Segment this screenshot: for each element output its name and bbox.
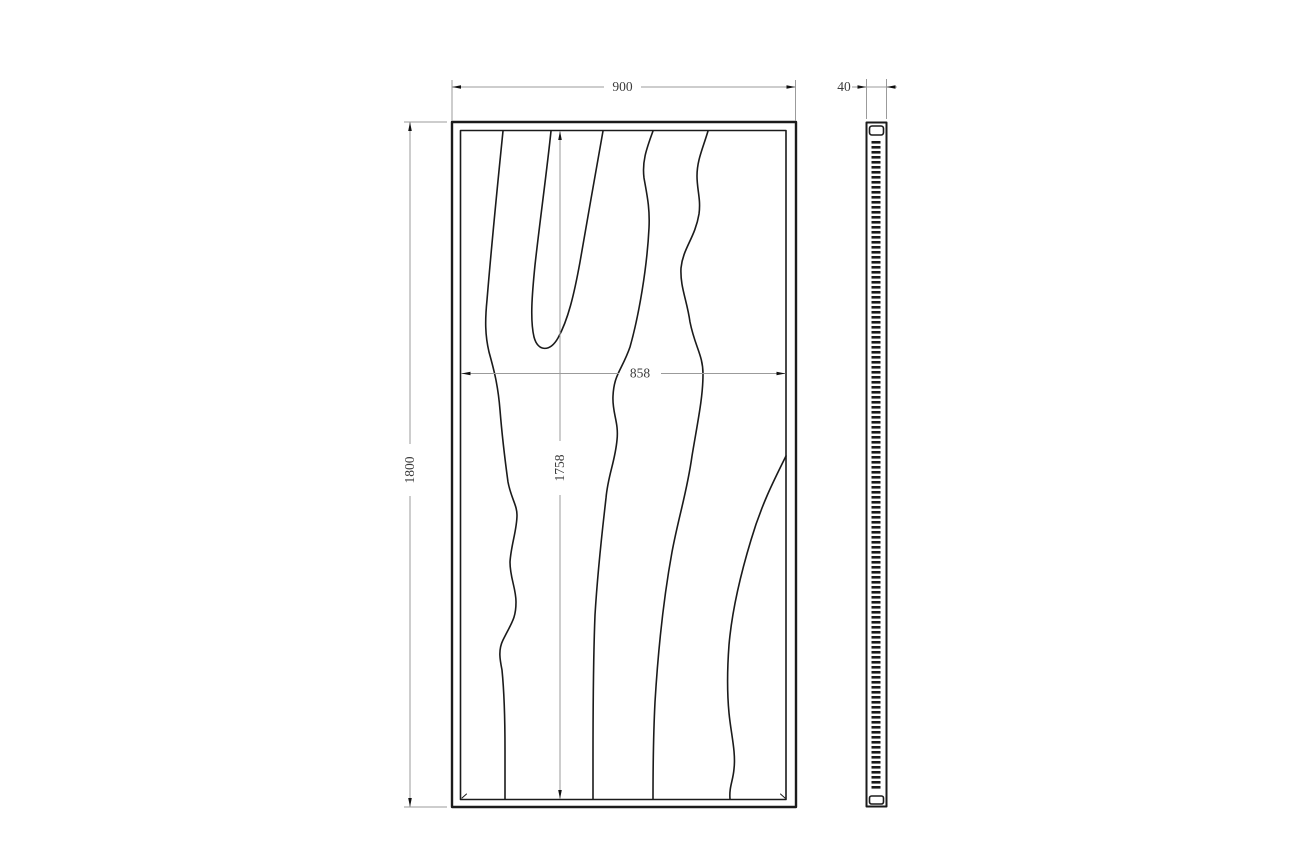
dim-thickness: 40: [837, 79, 897, 119]
dim-overall-height-label: 1800: [402, 456, 417, 483]
arrowhead-top: [558, 131, 562, 140]
corner-tick-bottom-right: [781, 794, 786, 798]
side-top-cap: [870, 126, 884, 135]
corner-tick-bottom-left: [462, 794, 467, 798]
arrowhead-left: [452, 85, 461, 89]
grain-line-2: [593, 131, 653, 799]
dim-inner-height: 1758: [552, 131, 567, 799]
technical-drawing-svg: 900 1800 858 1758: [0, 0, 1300, 867]
arrowhead-bottom: [408, 798, 412, 807]
arrowhead-bottom: [558, 790, 562, 799]
dim-thickness-label: 40: [837, 79, 851, 94]
dim-inner-width-label: 858: [630, 366, 651, 381]
side-bottom-cap: [870, 796, 884, 804]
arrowhead-right: [887, 85, 896, 89]
dim-overall-height: 1800: [402, 122, 447, 807]
dim-overall-width-label: 900: [612, 79, 633, 94]
grain-line-4: [728, 456, 787, 799]
dim-inner-height-label: 1758: [552, 454, 567, 481]
arrowhead-left: [858, 85, 867, 89]
front-view: [452, 122, 796, 807]
grain-line-3: [653, 131, 708, 799]
side-view: [867, 123, 887, 807]
arrowhead-top: [408, 122, 412, 131]
arrowhead-right: [777, 372, 786, 376]
front-inner-panel-edge: [461, 131, 787, 800]
dim-overall-width: 900: [452, 79, 796, 121]
arrowhead-right: [787, 85, 796, 89]
drawing-canvas: 900 1800 858 1758: [0, 0, 1300, 867]
arrowhead-left: [462, 372, 471, 376]
side-core-hatching: [872, 141, 881, 791]
grain-line-1: [486, 131, 517, 799]
grain-loop: [532, 131, 603, 348]
dim-inner-width: 858: [462, 366, 786, 381]
wood-grain-lines: [486, 131, 786, 799]
